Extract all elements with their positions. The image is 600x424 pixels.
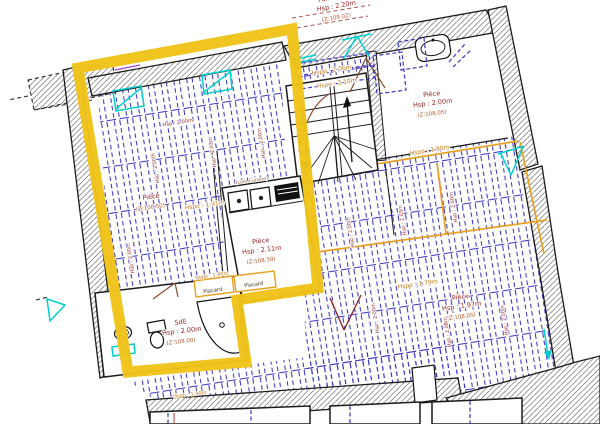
floor-plan-svg: Palier R+1 Hsp : 2.20m (Z:109.02) Hspo :… — [0, 0, 600, 424]
label-tr-hsp: Hsp : 2.00m — [413, 97, 453, 110]
label-room-top-right: Pièce Hsp : 2.00m (Z:108.05) — [412, 88, 455, 120]
label-sde-name: SdE — [174, 317, 187, 326]
chimney-shaft — [412, 365, 437, 403]
outer-wall-top-right — [284, 10, 498, 68]
window-left-edge — [47, 299, 65, 321]
label-palier: Palier R+1 Hsp : 2.20m (Z:109.02) — [315, 0, 359, 24]
label-tr-z: (Z:108.05) — [417, 109, 447, 119]
label-palier-z: (Z:109.02) — [322, 13, 352, 24]
sink-unit — [414, 33, 451, 62]
floor-plan-canvas: Palier R+1 Hsp : 2.20m (Z:109.02) Hspo :… — [0, 0, 600, 424]
